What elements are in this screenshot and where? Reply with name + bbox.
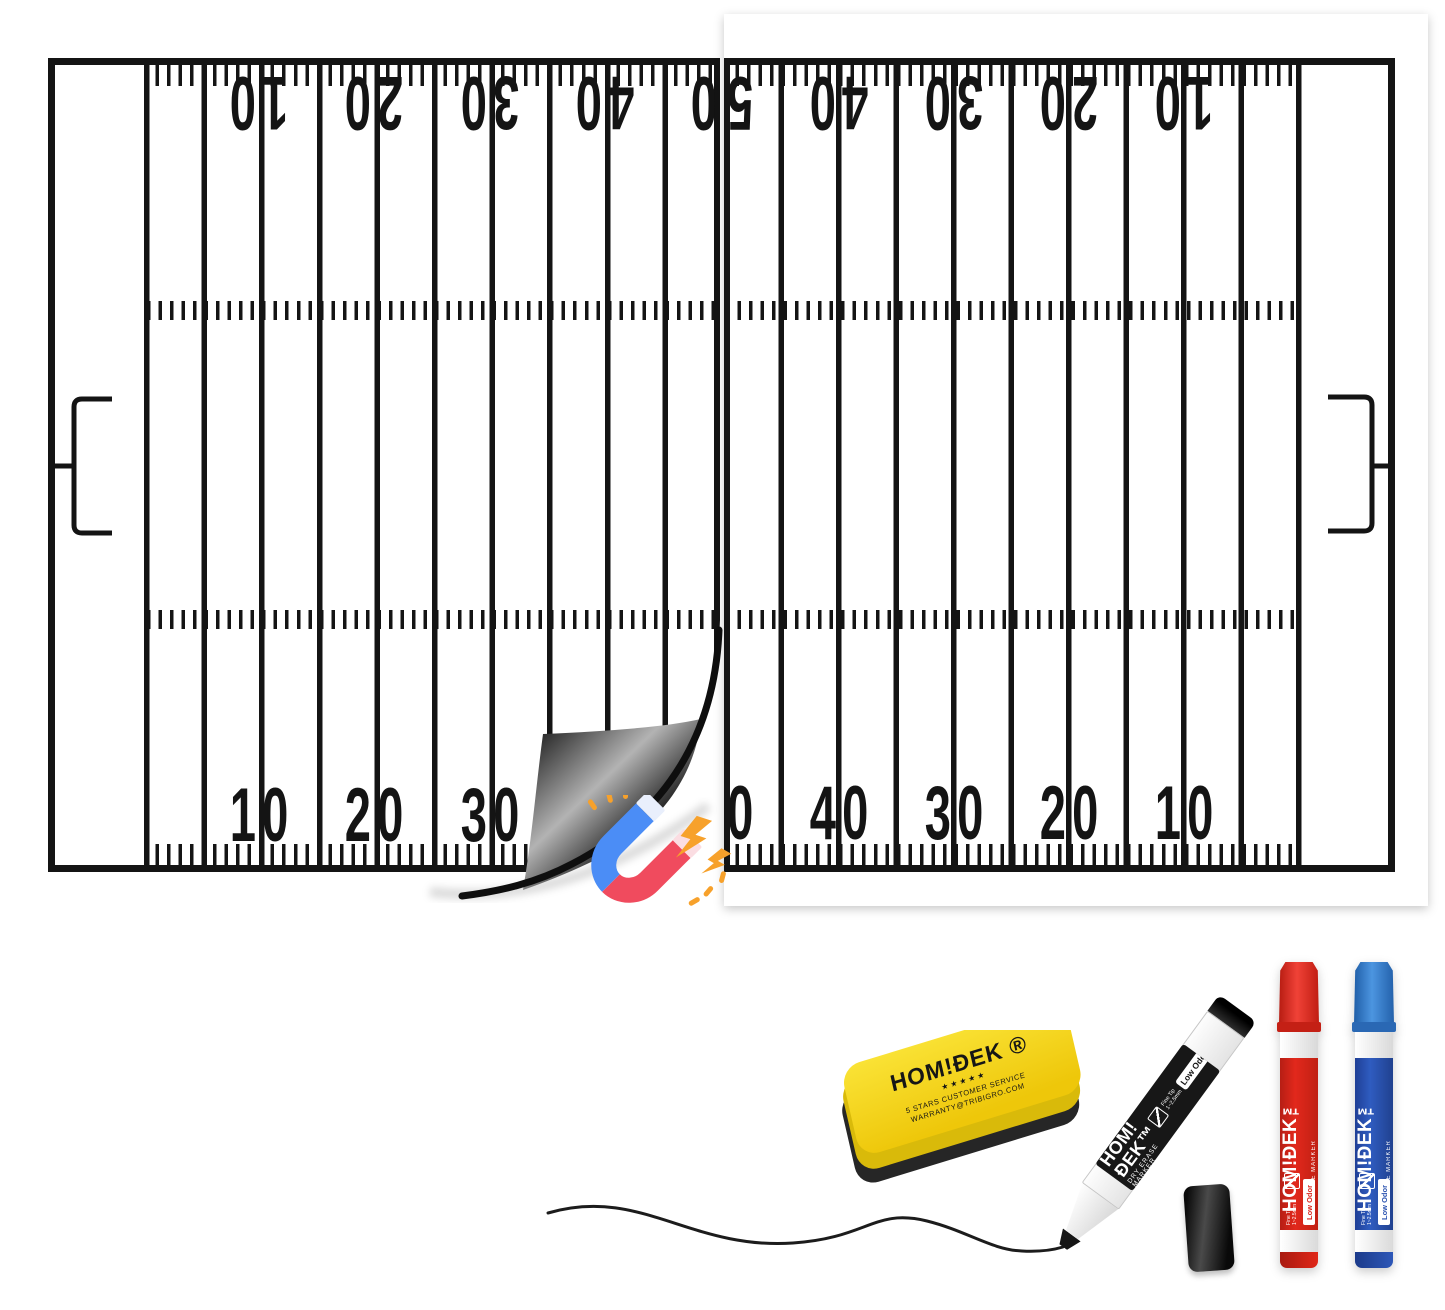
- low-odor-badge: Low Odor: [1303, 1179, 1315, 1225]
- yard-number-50-right: 50: [724, 64, 760, 140]
- yard-number: 40: [569, 64, 640, 140]
- marker-cap: [1279, 962, 1319, 1024]
- yard-number-50-right: 50: [724, 776, 760, 852]
- marker-tip-pictogram-icon: [1284, 1173, 1300, 1189]
- low-odor-badge: Low Odor: [1378, 1179, 1390, 1225]
- eraser: HOM!ÐEK ® ★ ★ ★ ★ ★ 5 STARS CUSTOMER SER…: [820, 1030, 1110, 1200]
- marker-lower-band: [1280, 1230, 1318, 1252]
- marker-tip-pictogram-icon: [1147, 1106, 1169, 1128]
- marker-tip-spec: Fine Tip 1~2.5mm: [1286, 1191, 1298, 1225]
- marker-tip-pictogram-icon: [1359, 1173, 1375, 1189]
- marker-tip-spec: Fine Tip 1~2.5mm: [1361, 1191, 1373, 1225]
- upper-hash-marks: [726, 301, 1299, 320]
- goal-post-right: [1320, 390, 1392, 540]
- blue-marker: HOM!ÐEK™ DRY ERASE MARKER Low Odor Fine …: [1352, 962, 1396, 1268]
- yard-lines: [144, 58, 722, 872]
- marker-label: HOM!ÐEK™ DRY ERASE MARKER Low Odor Fine …: [1280, 1058, 1318, 1230]
- yard-number: 40: [803, 776, 874, 852]
- yard-number: 30: [918, 64, 989, 140]
- eraser-side: [839, 1030, 1084, 1174]
- eraser-service-line: 5 STARS CUSTOMER SERVICE: [905, 1070, 1026, 1115]
- marker-collar: [1355, 1032, 1393, 1058]
- low-odor-text: Low Odor: [1380, 1185, 1389, 1220]
- eraser-warranty-line: WARRANTY@TRIBIGRO.COM: [910, 1081, 1025, 1124]
- yard-number: 20: [338, 778, 409, 854]
- eraser-felt-base: [838, 1030, 1083, 1188]
- marker-label: HOM!ÐEK™ DRY ERASE MARKER Low Odor Fine …: [1355, 1058, 1393, 1230]
- eraser-stars: ★ ★ ★ ★ ★: [940, 1070, 985, 1092]
- eraser-brand: HOM!ÐEK ®: [888, 1030, 1030, 1097]
- marker-tip-spec: Fine Tip 1~2.5mm: [1160, 1086, 1183, 1111]
- yard-number: 10: [223, 778, 294, 854]
- marker-butt: [1355, 1252, 1393, 1268]
- board-left-half: 10 20 30 40 50 10 20 30 40 50: [30, 22, 720, 896]
- yard-lines: [724, 58, 1305, 872]
- yard-number: 40: [803, 64, 874, 140]
- marker-cap: [1354, 962, 1394, 1024]
- yard-number: 20: [338, 64, 409, 140]
- marker-butt: [1280, 1252, 1318, 1268]
- marker-brand: HOM!ÐEK™: [1096, 1112, 1159, 1180]
- eraser-top-face: [840, 1030, 1085, 1158]
- low-odor-badge: Low Odor: [1175, 1045, 1213, 1090]
- goal-post-left: [52, 392, 122, 542]
- lower-hash-marks: [147, 610, 720, 629]
- board-right-half: 50 40 30 20 10 50 40 30 20 10: [724, 14, 1428, 906]
- yard-number: 20: [1033, 64, 1104, 140]
- yard-number: 30: [454, 778, 525, 854]
- marker-label: HOM!ÐEK™ DRY ERASE MARKER Fine Tip 1~2.5…: [1095, 1044, 1220, 1191]
- marker-cap-flange: [1352, 1022, 1396, 1032]
- marker-collar: [1280, 1032, 1318, 1058]
- upper-hash-marks: [147, 301, 720, 320]
- yard-number: 10: [1148, 776, 1219, 852]
- lower-hash-marks: [726, 610, 1299, 629]
- yard-number: 20: [1033, 776, 1104, 852]
- product-image: 10 20 30 40 50 10 20 30 40 50 50 40 30 2…: [0, 0, 1445, 1310]
- yard-number: 10: [1148, 64, 1219, 140]
- marker-barrel: HOM!ÐEK™ DRY ERASE MARKER Fine Tip 1~2.5…: [1082, 1011, 1245, 1210]
- yard-number: 30: [918, 776, 989, 852]
- low-odor-text: Low Odor: [1305, 1185, 1314, 1220]
- yard-number: 40: [569, 778, 640, 854]
- marker-lower-band: [1355, 1230, 1393, 1252]
- red-marker: HOM!ÐEK™ DRY ERASE MARKER Low Odor Fine …: [1277, 962, 1321, 1268]
- marker-cap-flange: [1277, 1022, 1321, 1032]
- black-marker-cap: [1183, 1184, 1235, 1273]
- yard-number: 10: [223, 64, 294, 140]
- yard-number: 30: [454, 64, 525, 140]
